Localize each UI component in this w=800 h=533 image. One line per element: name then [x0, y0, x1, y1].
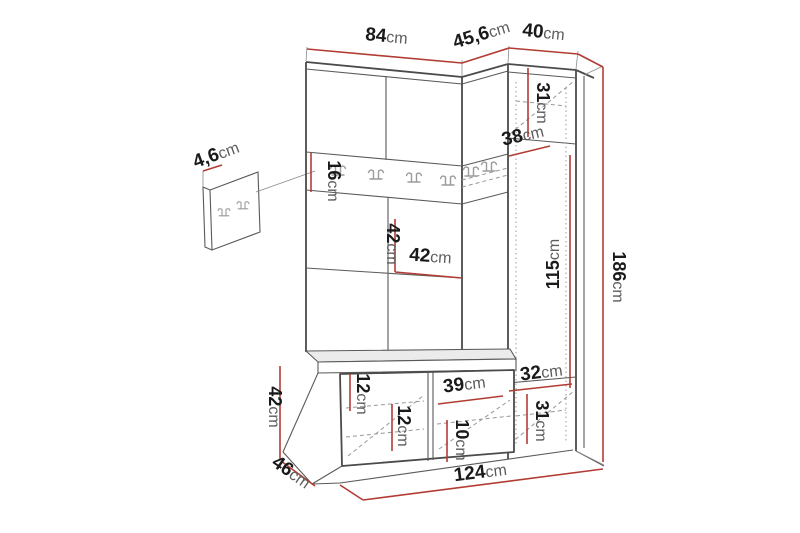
main-cabinet	[306, 62, 497, 352]
dim-label-main-width: 84cm	[364, 24, 408, 49]
wall-panel-front-face	[210, 172, 260, 250]
diagram-canvas: 84cm 45,6cm 40cm 4,6cm 16cm 42cm 42cm 31…	[0, 0, 800, 533]
dim-label-bench-bottom-gap: 10cm	[452, 419, 472, 460]
coat-hook-icon	[441, 176, 456, 185]
main-cabinet-panels	[306, 69, 462, 352]
dim-label-total-height: 186cm	[609, 251, 629, 302]
dim-line-shelf-width	[395, 272, 462, 278]
dim-label-shelf-width: 42cm	[408, 245, 452, 269]
wall-hook-panel	[203, 171, 315, 250]
dim-label-column-width: 40cm	[521, 20, 565, 45]
dim-line-corner-top-depth	[462, 48, 509, 63]
corner-top-edge	[462, 64, 508, 77]
dim-label-corner-shelf-depth: 38cm	[500, 121, 546, 151]
coat-hook-icon	[464, 167, 479, 176]
dim-label-column-bottom-height: 31cm	[532, 400, 552, 441]
dim-line-column-width	[509, 48, 603, 67]
dim-line-column-shelf-width	[509, 384, 572, 391]
dim-label-bench-height: 42cm	[265, 386, 285, 427]
coat-hook-icon	[369, 170, 384, 179]
dim-label-corner-top-depth: 45,6cm	[450, 16, 512, 53]
dim-label-column-top-height: 31cm	[533, 82, 553, 123]
coat-rail-hooks	[331, 162, 497, 185]
dim-label-open-section-height: 42cm	[383, 223, 403, 264]
dim-label-bench-top-gap: 12cm	[353, 373, 373, 414]
dim-label-bench-mid-gap: 12cm	[394, 405, 414, 446]
dim-line-main-width	[307, 49, 462, 63]
furniture-dimension-drawing: 84cm 45,6cm 40cm 4,6cm 16cm 42cm 42cm 31…	[0, 0, 800, 533]
main-cabinet-outline	[306, 62, 462, 352]
dim-label-column-mid-height: 115cm	[543, 239, 563, 289]
coat-hook-icon	[407, 173, 422, 182]
dim-label-column-shelf-width: 32cm	[519, 360, 564, 386]
dim-label-rail-height: 16cm	[324, 160, 344, 201]
dimension-labels: 84cm 45,6cm 40cm 4,6cm 16cm 42cm 42cm 31…	[190, 16, 629, 493]
coat-hook-icon	[482, 162, 497, 171]
dim-label-bench-depth: 46cm	[268, 452, 315, 494]
